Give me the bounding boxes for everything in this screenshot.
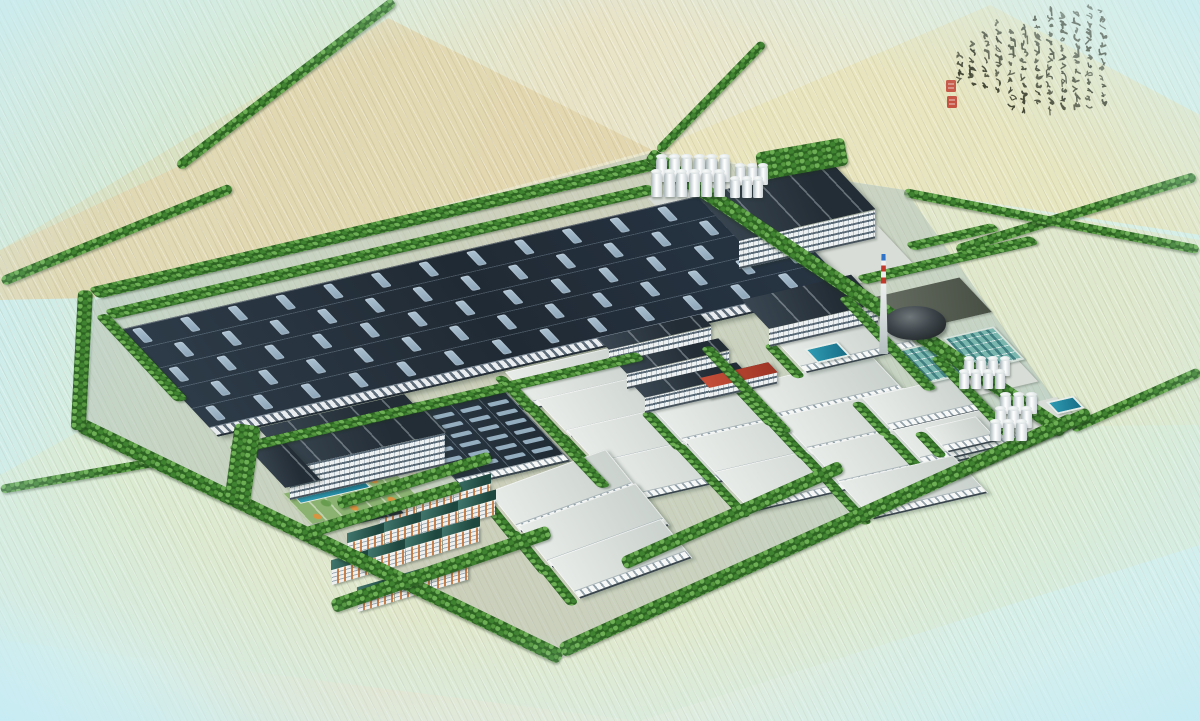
calligraphy-glyph	[996, 70, 999, 76]
calligraphy-glyph	[1046, 82, 1050, 87]
skylight-strip	[359, 322, 381, 338]
skylight-strip	[269, 319, 291, 335]
calligraphy-glyph	[1022, 108, 1024, 113]
skylight-strip	[401, 336, 423, 352]
calligraphy-glyph	[1102, 93, 1105, 97]
calligraphy-glyph	[1050, 32, 1052, 36]
calligraphy-glyph	[1101, 17, 1105, 22]
calligraphy-glyph	[1037, 75, 1042, 79]
calligraphy-glyph	[1073, 86, 1077, 91]
skylight-strip	[168, 366, 190, 382]
skylight-panel	[432, 411, 455, 419]
skylight-strip	[645, 256, 667, 272]
storage-tank	[971, 371, 981, 389]
storage-tank	[990, 421, 1001, 441]
calligraphy-glyph	[1073, 78, 1079, 82]
skylight-strip	[514, 239, 536, 255]
skylight-strip	[412, 286, 434, 302]
skylight-panel	[460, 405, 483, 413]
calligraphy-glyph	[957, 62, 962, 66]
skylight-panel	[477, 424, 500, 432]
calligraphy-glyph	[996, 30, 1001, 35]
skylight-panel	[504, 418, 527, 426]
skylight-panel	[503, 452, 526, 460]
calligraphy-glyph	[995, 20, 998, 26]
storage-silo	[701, 171, 712, 197]
calligraphy-glyph	[996, 37, 1001, 44]
calligraphy-glyph	[985, 50, 989, 59]
storage-silo	[753, 178, 763, 198]
calligraphy-glyph	[1074, 12, 1080, 17]
calligraphy-glyph	[1100, 67, 1104, 71]
calligraphy-glyph	[1088, 5, 1092, 9]
calligraphy-glyph	[969, 74, 973, 78]
calligraphy-glyph	[1061, 46, 1062, 51]
skylight-strip	[460, 275, 482, 291]
storage-tank	[1016, 421, 1027, 441]
calligraphy-glyph	[1087, 47, 1091, 51]
skylight-strip	[502, 289, 524, 305]
skylight-strip	[179, 316, 201, 332]
skylight-strip	[698, 220, 720, 236]
calligraphy-glyph	[985, 74, 989, 76]
skylight-strip	[348, 372, 370, 388]
calligraphy-glyph	[972, 83, 975, 85]
skylight-strip	[466, 250, 488, 266]
calligraphy-glyph	[1020, 59, 1025, 63]
skylight-strip	[370, 272, 392, 288]
calligraphy-glyph	[1022, 41, 1024, 49]
skylight-strip	[609, 217, 631, 233]
coal-pile	[884, 306, 946, 340]
calligraphy-glyph	[982, 32, 986, 38]
calligraphy-glyph	[1086, 29, 1091, 37]
calligraphy-glyph	[1048, 90, 1052, 94]
calligraphy-glyph	[1088, 63, 1092, 67]
calligraphy-glyph	[1009, 62, 1011, 65]
skylight-strip	[305, 358, 327, 374]
calligraphy-glyph	[1074, 53, 1078, 57]
calligraphy-glyph	[1101, 33, 1107, 38]
skylight-strip	[555, 253, 577, 269]
skylight-strip	[544, 303, 566, 319]
storage-silo	[664, 171, 675, 197]
calligraphy-glyph	[1049, 98, 1054, 104]
skylight-strip	[418, 261, 440, 277]
skylight-panel	[486, 433, 509, 441]
calligraphy-glyph	[1047, 73, 1052, 79]
skylight-strip	[311, 333, 333, 349]
skylight-strip	[657, 206, 679, 222]
skylight-strip	[275, 294, 297, 310]
calligraphy-glyph	[1023, 49, 1028, 56]
skylight-strip	[682, 295, 704, 311]
calligraphy-glyph	[1062, 89, 1066, 92]
calligraphy-glyph	[1075, 28, 1077, 32]
calligraphy-glyph	[997, 79, 1001, 86]
skylight-strip	[216, 355, 238, 371]
calligraphy-glyph	[1050, 7, 1052, 16]
calligraphy-glyph	[1100, 75, 1104, 80]
storage-silo	[730, 178, 740, 198]
calligraphy-glyph	[1089, 55, 1092, 59]
calligraphy-glyph	[1102, 100, 1106, 106]
storage-tank	[959, 371, 969, 389]
calligraphy-glyph	[1087, 13, 1092, 18]
skylight-strip	[227, 305, 249, 321]
calligraphy-glyph	[1035, 26, 1040, 28]
calligraphy-glyph	[996, 88, 999, 93]
calligraphy-glyph	[1088, 89, 1093, 93]
skylight-strip	[173, 341, 195, 357]
skylight-panel	[513, 427, 536, 435]
calligraphy-glyph	[1061, 103, 1065, 109]
calligraphy-glyph	[971, 49, 975, 55]
skylight-strip	[592, 292, 614, 308]
storage-silo	[651, 171, 662, 197]
calligraphy-glyph	[1023, 84, 1026, 87]
skylight-strip	[586, 317, 608, 333]
storage-silo	[742, 178, 752, 198]
skylight-strip	[687, 270, 709, 286]
skylight-strip	[639, 281, 661, 297]
skylight-strip	[730, 284, 752, 300]
calligraphy-glyph	[1086, 96, 1090, 100]
skylight-strip	[491, 339, 513, 355]
calligraphy-glyph	[957, 52, 962, 57]
skylight-panel	[468, 415, 491, 423]
calligraphy-glyph	[1009, 78, 1012, 81]
storage-silo	[714, 171, 725, 197]
skylight-strip	[693, 245, 715, 261]
storage-silo	[689, 171, 700, 197]
calligraphy-glyph	[1035, 59, 1038, 62]
calligraphy-glyph	[1061, 30, 1067, 34]
calligraphy-glyph	[1074, 35, 1079, 41]
skylight-panel	[487, 399, 510, 407]
skylight-strip	[448, 325, 470, 341]
storage-tank	[1003, 421, 1014, 441]
calligraphy-glyph	[1062, 96, 1065, 101]
calligraphy-glyph	[1047, 40, 1052, 45]
calligraphy-glyph	[1009, 87, 1013, 93]
calligraphy-glyph	[1061, 21, 1066, 28]
skylight-strip	[264, 344, 286, 360]
calligraphy-glyph	[1061, 79, 1064, 86]
skylight-strip	[496, 314, 518, 330]
skylight-panel	[459, 440, 482, 448]
aerial-rendering-canvas	[0, 0, 1200, 721]
skylight-strip	[132, 327, 154, 343]
skylight-strip	[539, 328, 561, 344]
calligraphy-glyph	[985, 58, 987, 63]
calligraphy-glyph	[1086, 37, 1091, 44]
calligraphy-glyph	[1036, 66, 1040, 71]
skylight-strip	[603, 242, 625, 258]
skylight-strip	[316, 308, 338, 324]
calligraphy-glyph	[1074, 103, 1079, 109]
skylight-strip	[777, 273, 799, 289]
skylight-strip	[455, 300, 477, 316]
skylight-strip	[205, 405, 227, 421]
skylight-strip	[257, 369, 279, 385]
red-seal-stamp	[947, 96, 957, 108]
storage-tank	[983, 371, 993, 389]
calligraphy-glyph	[959, 70, 963, 75]
calligraphy-glyph	[1088, 79, 1091, 84]
calligraphy-glyph	[1048, 57, 1052, 62]
calligraphy-glyph	[1035, 33, 1040, 40]
calligraphy-glyph	[1048, 16, 1053, 21]
calligraphy-glyph	[1050, 24, 1053, 26]
calligraphy-glyph	[1021, 74, 1025, 80]
skylight-panel	[522, 436, 545, 444]
skylight-panel	[531, 446, 554, 454]
skylight-strip	[443, 350, 465, 366]
calligraphy-glyph	[1034, 16, 1037, 20]
skylight-strip	[507, 264, 529, 280]
red-seal-stamp	[946, 80, 956, 92]
calligraphy-glyph	[1061, 38, 1065, 41]
calligraphy-glyph	[970, 42, 974, 47]
calligraphy-inscription	[940, 0, 1130, 160]
calligraphy-glyph	[1010, 95, 1016, 100]
calligraphy-glyph	[969, 58, 973, 63]
skylight-strip	[634, 306, 656, 322]
calligraphy-glyph	[1076, 69, 1081, 73]
calligraphy-glyph	[1010, 30, 1014, 33]
calligraphy-glyph	[996, 45, 1001, 51]
skylight-strip	[598, 267, 620, 283]
skylight-panel	[496, 408, 519, 416]
calligraphy-glyph	[1073, 18, 1080, 25]
skylight-panel	[450, 430, 473, 438]
skylight-strip	[550, 278, 572, 294]
calligraphy-glyph	[1011, 38, 1016, 47]
calligraphy-glyph	[1048, 107, 1051, 115]
calligraphy-glyph	[985, 41, 989, 46]
calligraphy-glyph	[1008, 104, 1014, 109]
skylight-strip	[300, 383, 322, 399]
skylight-strip	[353, 347, 375, 363]
skylight-strip	[221, 330, 243, 346]
skylight-strip	[561, 228, 583, 244]
calligraphy-glyph	[1088, 22, 1092, 28]
calligraphy-glyph	[1102, 84, 1106, 87]
calligraphy-glyph	[1101, 43, 1106, 47]
skylight-panel	[495, 443, 518, 451]
skylight-strip	[252, 394, 274, 410]
calligraphy-glyph	[1085, 71, 1092, 76]
calligraphy-glyph	[1035, 50, 1039, 55]
calligraphy-glyph	[1009, 71, 1015, 75]
calligraphy-glyph	[983, 83, 988, 88]
calligraphy-glyph	[1075, 60, 1079, 63]
calligraphy-glyph	[1101, 59, 1105, 65]
storage-tank	[995, 371, 1005, 389]
calligraphy-glyph	[1099, 50, 1106, 55]
skylight-strip	[396, 361, 418, 377]
calligraphy-glyph	[1036, 91, 1041, 95]
calligraphy-glyph	[957, 77, 962, 82]
skylight-strip	[210, 380, 232, 396]
skylight-strip	[364, 297, 386, 313]
calligraphy-glyph	[1037, 83, 1042, 87]
skylight-strip	[407, 311, 429, 327]
storage-silo	[676, 171, 687, 197]
skylight-strip	[323, 283, 345, 299]
calligraphy-glyph	[1035, 100, 1040, 103]
calligraphy-glyph	[1021, 99, 1025, 103]
calligraphy-glyph	[1098, 10, 1102, 13]
skylight-panel	[441, 421, 464, 429]
calligraphy-glyph	[1100, 25, 1106, 29]
calligraphy-glyph	[1061, 63, 1066, 68]
calligraphy-glyph	[1075, 93, 1080, 101]
skylight-strip	[651, 231, 673, 247]
calligraphy-glyph	[1022, 67, 1026, 70]
calligraphy-glyph	[1061, 55, 1066, 60]
calligraphy-glyph	[1086, 106, 1091, 108]
calligraphy-glyph	[982, 66, 987, 71]
calligraphy-glyph	[1050, 49, 1054, 59]
calligraphy-glyph	[1060, 13, 1065, 19]
